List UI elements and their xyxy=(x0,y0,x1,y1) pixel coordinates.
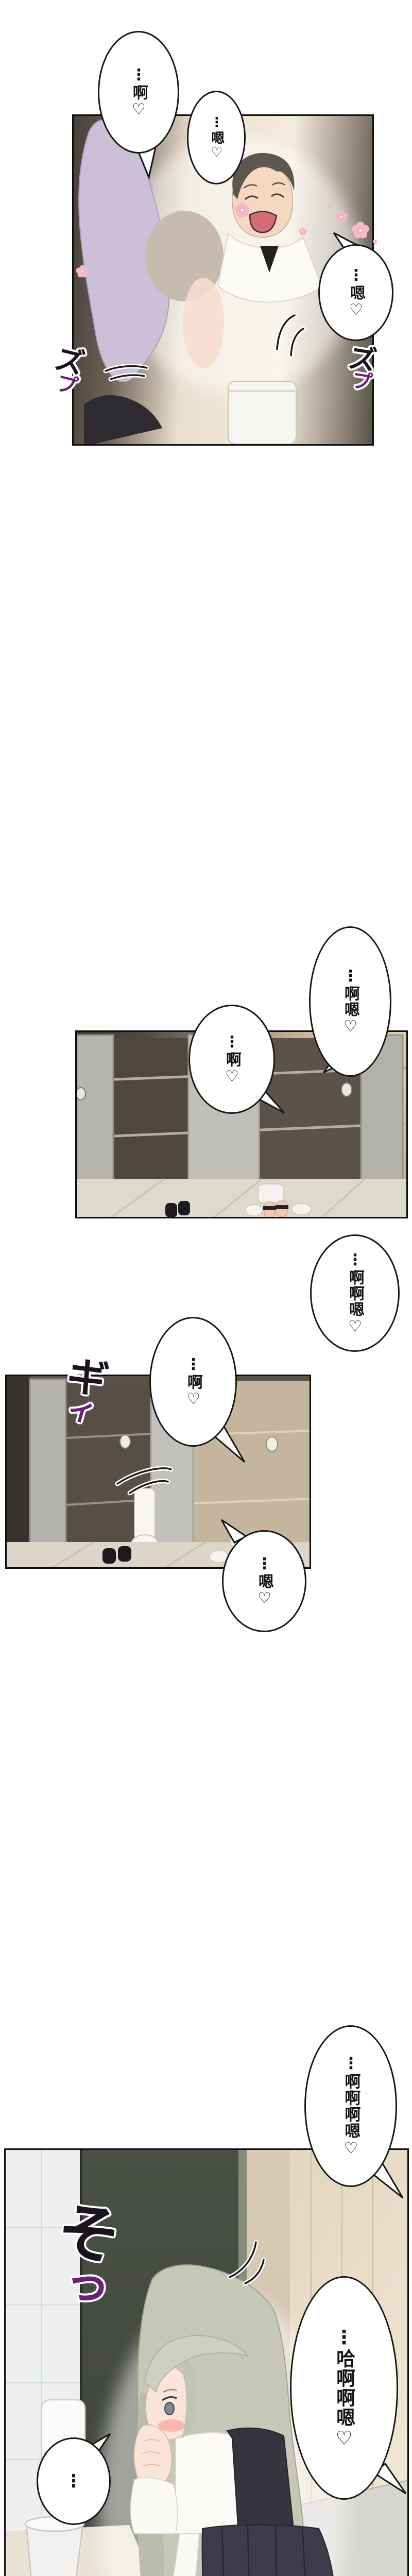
white-slipper xyxy=(245,1205,263,1216)
speech-bubble-6: ⋮啊啊嗯♡ xyxy=(310,1234,400,1352)
speech-bubble-10: ⋮哈啊啊嗯♡ xyxy=(290,2276,398,2500)
bubble-text: ⋮啊啊啊嗯♡ xyxy=(342,2054,359,2158)
girl-jumper-bodice xyxy=(227,2428,294,2534)
speech-bubble-9: ⋮啊啊啊嗯♡ xyxy=(304,2025,397,2187)
dark-wall xyxy=(7,1376,30,1569)
bubble-text: ⋮嗯♡ xyxy=(256,1555,272,1608)
black-shoe xyxy=(102,1548,116,1564)
black-shoe xyxy=(118,1546,131,1562)
door-lock xyxy=(341,1083,352,1096)
sandal-strap xyxy=(276,1205,288,1209)
sfx-char: プ xyxy=(55,373,79,397)
white-slipper xyxy=(291,1204,311,1215)
stall-door xyxy=(113,1038,188,1181)
bubble-text: ⋮啊♡ xyxy=(185,1355,201,1409)
toilet xyxy=(134,1488,155,1540)
coat-hook xyxy=(120,1435,130,1448)
speech-bubble-5: ⋮啊♡ xyxy=(188,1005,275,1114)
bubble-text: ⋮啊啊嗯♡ xyxy=(347,1251,363,1336)
bubble-text: ⋮啊♡ xyxy=(130,66,147,119)
girl-cuff xyxy=(131,2478,178,2534)
figure-abstract xyxy=(183,278,224,368)
speech-bubble-8: ⋮嗯♡ xyxy=(222,1530,306,1632)
black-shoe xyxy=(165,1203,177,1217)
sfx-char: ィ xyxy=(64,1394,99,1427)
speech-bubble-1: ⋮啊♡ xyxy=(98,31,179,154)
bubble-text: ⋮哈啊啊嗯♡ xyxy=(334,2326,354,2450)
webtoon-page: ズプ ズプ ギィ そっ ⋮啊♡ ⋮嗯♡ ⋮嗯♡ ⋮啊嗯♡ ⋮啊♡ ⋮啊啊嗯♡ ⋮… xyxy=(0,0,412,2576)
sfx-char: っ xyxy=(62,2260,113,2309)
sfx-char: プ xyxy=(351,371,373,392)
girl-eye xyxy=(165,2402,174,2415)
toilet-base xyxy=(258,1184,284,1203)
bubble-text: ⋮嗯♡ xyxy=(209,115,224,161)
sandal-strap xyxy=(263,1206,276,1210)
blush xyxy=(158,2419,185,2432)
door-lock xyxy=(77,1088,85,1100)
speech-bubble-7: ⋮啊♡ xyxy=(149,1317,237,1447)
bubble-text: ⋮嗯♡ xyxy=(348,266,364,319)
bubble-text: ⋮ xyxy=(64,2471,83,2492)
speech-bubble-11: ⋮ xyxy=(37,2437,111,2525)
speech-bubble-3: ⋮嗯♡ xyxy=(318,244,393,341)
motion-swooshes xyxy=(106,315,303,2283)
bubble-text: ⋮啊♡ xyxy=(224,1033,240,1086)
speech-bubble-4: ⋮啊嗯♡ xyxy=(309,926,391,1077)
speech-bubble-2: ⋮嗯♡ xyxy=(187,91,246,184)
bubble-text: ⋮啊嗯♡ xyxy=(342,967,358,1036)
black-shoe xyxy=(178,1201,190,1215)
coat-hook xyxy=(266,1437,278,1451)
stall-partition xyxy=(77,1035,113,1198)
